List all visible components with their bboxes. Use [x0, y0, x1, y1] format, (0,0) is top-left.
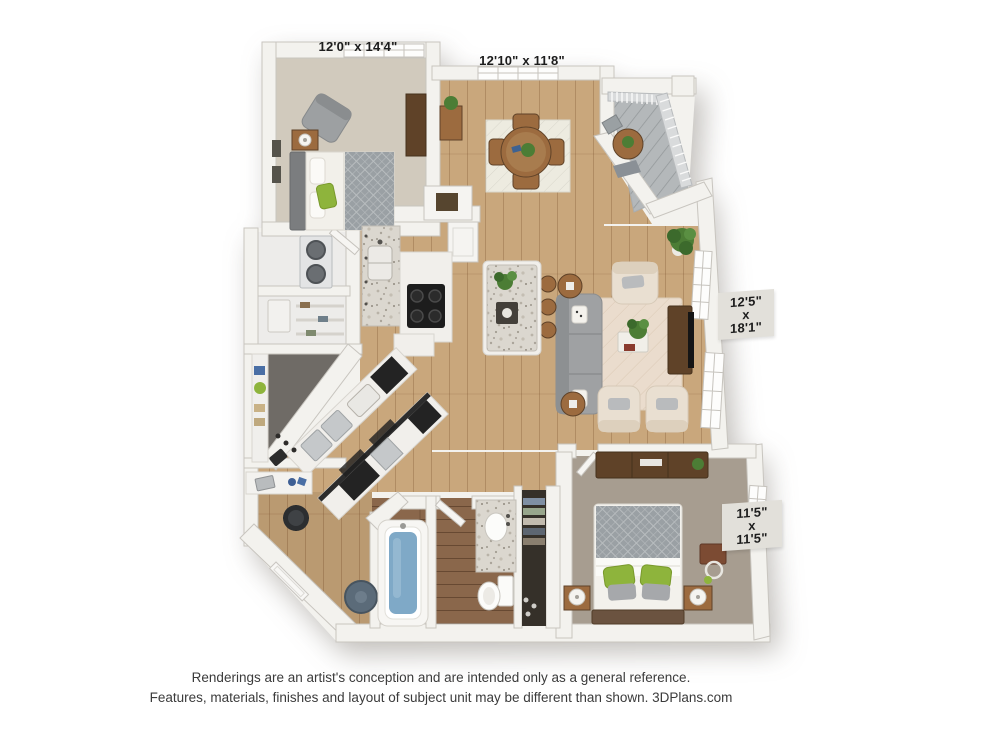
pillow	[310, 158, 325, 184]
bedroom1-bed	[290, 152, 394, 230]
wall-art-frame	[272, 166, 281, 183]
tv-console	[668, 306, 694, 374]
floorplan-rendering	[0, 0, 1000, 750]
stacked-laundry	[300, 236, 332, 288]
dimension-label-bedroom2: 11'5" x 11'5"	[722, 500, 782, 551]
wall-art-frame	[272, 140, 281, 157]
bedroom1-nightstand	[292, 130, 318, 150]
sink-counter	[362, 226, 400, 326]
disclaimer-line-2: Features, materials, finishes and layout…	[0, 688, 901, 708]
gray-pillow	[641, 583, 670, 601]
wall-left-upper	[262, 42, 276, 236]
dimension-label-living: 12'5" x 18'1"	[718, 289, 774, 340]
entry-items	[345, 581, 377, 613]
closet-lamp	[254, 382, 266, 394]
bar-stool	[540, 299, 556, 315]
dimension-label-bedroom1: 12'0" x 14'4"	[293, 40, 423, 53]
faucet	[378, 240, 383, 245]
nightstand-left	[564, 586, 590, 610]
dimension-label-dining: 12'10" x 11'8"	[457, 54, 587, 67]
office-chair	[283, 505, 309, 531]
floorplan-page: 12'0" x 14'4" 12'10" x 11'8" 12'5" x 18'…	[0, 0, 1000, 750]
bedroom2-dresser	[596, 452, 708, 478]
disclaimer-line-1: Renderings are an artist's conception an…	[0, 668, 901, 688]
table-centerpiece-plant	[521, 143, 535, 157]
disclaimer: Renderings are an artist's conception an…	[0, 668, 901, 708]
dining-hutch	[440, 106, 462, 140]
armchair-bottom-right	[646, 386, 688, 432]
utility-fixture	[268, 300, 290, 332]
hutch-plant	[444, 96, 458, 110]
tub-faucet	[400, 523, 406, 529]
bathtub	[378, 520, 428, 626]
green-vase	[704, 576, 712, 584]
bistro-plant	[622, 136, 634, 148]
sofa-pillow	[572, 306, 587, 323]
kitchen-island	[483, 261, 541, 355]
gray-pillow	[607, 583, 636, 601]
side-table-top	[558, 274, 582, 298]
vanity	[476, 500, 516, 572]
headboard	[592, 610, 684, 624]
bedroom1-wardrobe	[406, 94, 426, 156]
dimension-line: 18'1"	[720, 319, 772, 336]
linen-closet	[522, 490, 546, 626]
living-window-lower	[701, 353, 725, 429]
armchair-top	[612, 262, 658, 304]
bedroom2-bed	[592, 504, 684, 624]
bar-stool	[540, 322, 556, 338]
dresser-plant	[692, 458, 704, 470]
dimension-line: 11'5"	[724, 530, 780, 547]
living-window-upper	[691, 251, 712, 320]
wall-balcony-column	[672, 76, 694, 96]
side-table-bottom	[561, 392, 585, 416]
bar-stool	[540, 276, 556, 292]
book	[624, 344, 635, 351]
vanity-sink	[485, 513, 507, 541]
tv-screen	[688, 312, 694, 368]
wall-bathcloset-right	[546, 486, 560, 628]
armchair-bottom-left	[598, 386, 640, 432]
cooktop	[407, 284, 445, 328]
dining-window	[478, 67, 558, 80]
nightstand-right	[684, 586, 712, 610]
headboard	[290, 152, 306, 230]
range-counter	[400, 252, 452, 342]
